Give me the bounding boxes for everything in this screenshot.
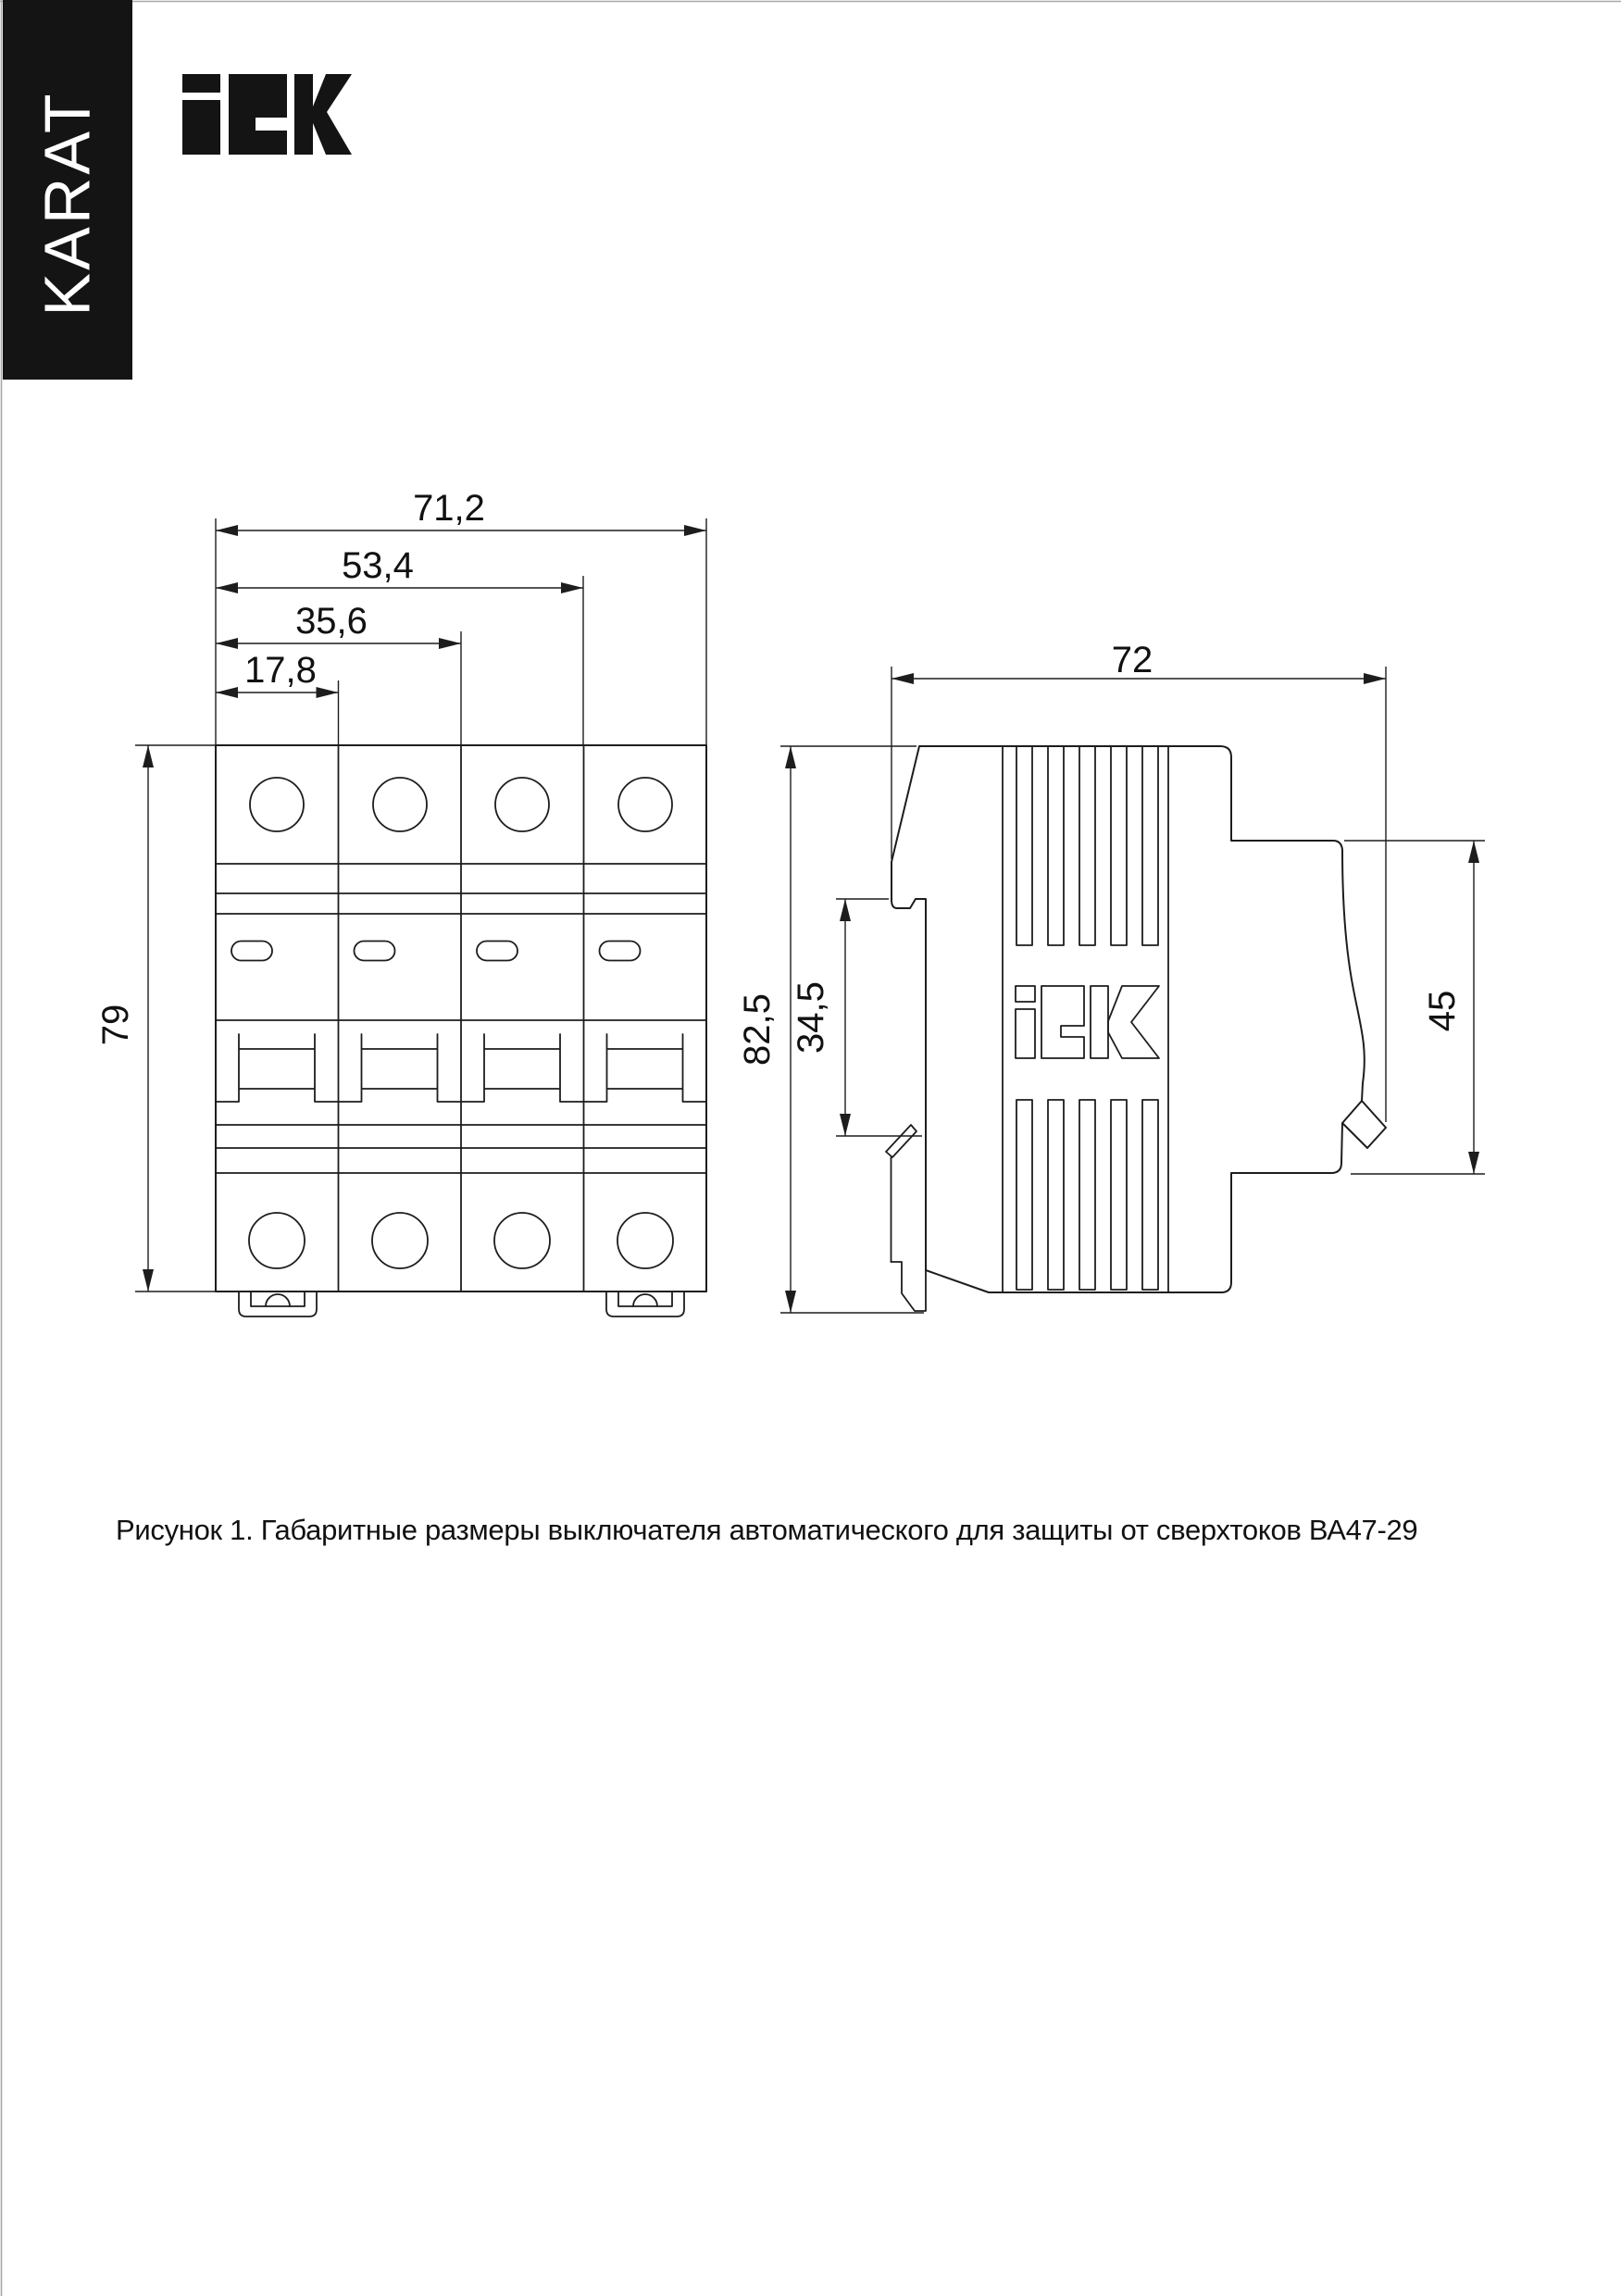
dim-width-three: 53,4: [342, 545, 414, 586]
label-windows: [231, 942, 641, 961]
front-view: [216, 745, 706, 1316]
rib-panel: [1003, 746, 1168, 1292]
figure-caption: Рисунок 1. Габаритные размеры выключател…: [116, 1514, 1417, 1546]
dim-height-side: 82,5: [737, 993, 778, 1066]
dim-width-one: 17,8: [244, 650, 317, 691]
dim-front-height: 45: [1422, 991, 1463, 1032]
datasheet-page: KARAT: [0, 0, 1621, 2296]
dim-width-two: 35,6: [295, 601, 368, 642]
iek-logo: [182, 74, 352, 155]
dimension-drawing: KARAT: [0, 0, 1621, 2296]
din-channel-side: [886, 1125, 926, 1311]
dim-height-front: 79: [95, 1004, 136, 1046]
side-view: [886, 746, 1386, 1311]
module-dividers: [339, 745, 584, 1291]
dim-din-recess: 34,5: [791, 981, 831, 1054]
din-clips-front: [239, 1291, 684, 1316]
dim-depth: 72: [1112, 640, 1153, 680]
arrowheads-front: [143, 525, 706, 1291]
dim-width-total: 71,2: [413, 488, 485, 529]
karat-banner: KARAT: [3, 0, 132, 380]
karat-banner-label: KARAT: [31, 91, 103, 316]
front-view-dimensions: 71,2 53,4 35,6 17,8 79: [95, 488, 706, 1291]
iek-logo-emboss: [1016, 986, 1159, 1058]
arrowheads-side: [785, 673, 1479, 1313]
breaker-body-side: [892, 746, 1386, 1292]
